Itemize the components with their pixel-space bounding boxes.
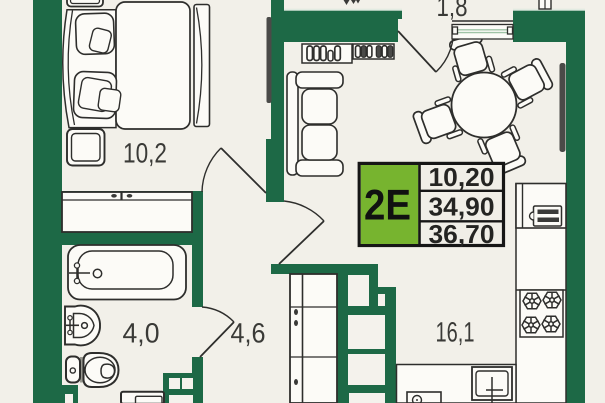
svg-text:4,6: 4,6 <box>231 318 266 349</box>
svg-text:36,70: 36,70 <box>429 219 495 249</box>
svg-text:34,90: 34,90 <box>429 192 495 222</box>
svg-text:10,2: 10,2 <box>123 138 167 169</box>
svg-text:4,0: 4,0 <box>123 318 160 349</box>
svg-text:1,8: 1,8 <box>437 0 468 22</box>
svg-text:16,1: 16,1 <box>436 317 475 348</box>
svg-text:10,20: 10,20 <box>429 162 495 192</box>
svg-text:2E: 2E <box>364 182 411 230</box>
